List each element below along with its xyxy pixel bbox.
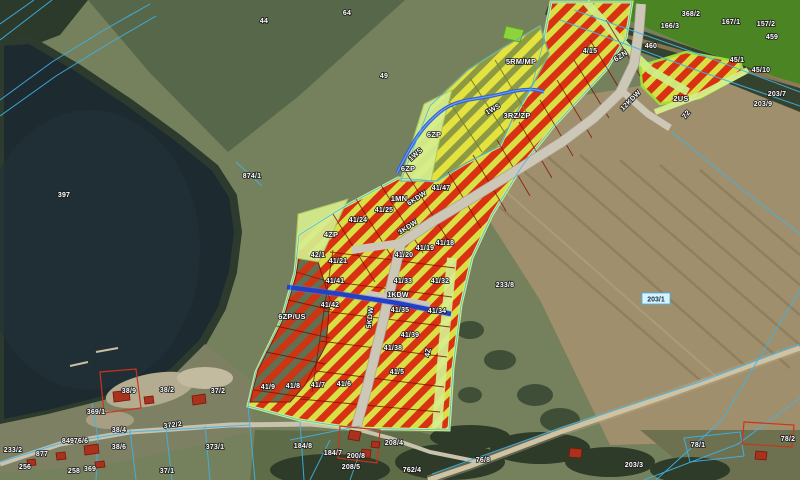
- parcel-label: 397: [58, 192, 70, 199]
- parcel-label: 849: [62, 438, 74, 445]
- selected-parcel-label-text: 203/1: [647, 297, 665, 304]
- parcel-label: 256: [19, 464, 31, 471]
- parcel-label: 41/20: [395, 252, 414, 259]
- parcel-label: 37/2: [211, 388, 225, 395]
- parcel-label: 184/8: [294, 443, 313, 450]
- parcel-label: 78/2: [781, 436, 795, 443]
- parcel-label: 41/19: [416, 245, 435, 252]
- parcel-label: 877: [36, 451, 48, 458]
- parcel-label: 41/42: [321, 302, 340, 309]
- parcel-label: 41/9: [261, 384, 275, 391]
- map-viewport: 5RM/MP3RZ/ZP6ZP6ZP6ZN2US4ZP6ZP/US1MN4Z72…: [0, 0, 800, 480]
- parcel-label: 874/1: [243, 173, 262, 180]
- parcel-label: 41/38: [384, 345, 403, 352]
- parcel-label: 184/7: [324, 450, 343, 457]
- parcel-label: 41/18: [436, 240, 455, 247]
- parcel-label: 76/6: [74, 438, 88, 445]
- parcel-label: 166/3: [661, 23, 680, 30]
- parcel-label: 167/1: [722, 19, 741, 26]
- parcel-label: 373/1: [206, 444, 225, 451]
- parcel-label: 258: [68, 468, 80, 475]
- map-canvas[interactable]: 5RM/MP3RZ/ZP6ZP6ZP6ZN2US4ZP6ZP/US1MN4Z72…: [0, 0, 800, 480]
- parcel-label: 49: [380, 73, 388, 80]
- parcel-label: 41/7: [311, 382, 325, 389]
- zone-label: 4ZP: [324, 230, 338, 239]
- zone-label: 2US: [673, 94, 688, 103]
- parcel-label: 369/1: [87, 409, 106, 416]
- parcel-label: 41/41: [326, 278, 345, 285]
- zone-label: 3RZ/ZP: [503, 111, 530, 120]
- parcel-label: 41/8: [286, 383, 300, 390]
- parcel-label: 78/1: [691, 442, 705, 449]
- parcel-label: 762/4: [403, 467, 422, 474]
- parcel-label: 200/8: [347, 453, 366, 460]
- parcel-label: 76/8: [476, 457, 490, 464]
- parcel-label: 41/21: [329, 258, 348, 265]
- parcel-label: 41/25: [375, 207, 394, 214]
- parcel-label: 460: [645, 43, 657, 50]
- parcel-label: 42/1: [311, 252, 325, 259]
- parcel-label: 208/4: [385, 440, 404, 447]
- zone-label: 4Z: [422, 347, 432, 358]
- zone-label: 1MN: [391, 194, 407, 203]
- road-label: 1KDW: [387, 292, 409, 299]
- zone-label: 6ZP: [427, 130, 441, 139]
- parcel-label: 38/6: [112, 444, 126, 451]
- parcel-label: 38/4: [112, 427, 126, 434]
- parcel-label: 41/35: [391, 307, 410, 314]
- parcel-label: 233/8: [496, 282, 515, 289]
- parcel-label: 41/47: [432, 185, 451, 192]
- zone-label: 5RM/MP: [506, 57, 536, 66]
- parcel-label: 157/2: [757, 21, 776, 28]
- parcel-label: 203/7: [768, 91, 787, 98]
- parcel-label: 4/15: [583, 48, 597, 55]
- parcel-label: 37/1: [160, 468, 174, 475]
- parcel-label: 41/32: [431, 278, 450, 285]
- parcel-label: 203/9: [754, 101, 773, 108]
- parcel-label: 41/24: [349, 217, 368, 224]
- parcel-label: 369: [84, 466, 96, 473]
- parcel-label: 45/1: [730, 57, 744, 64]
- parcel-label: 64: [343, 10, 351, 17]
- parcel-label: 41/33: [394, 278, 413, 285]
- parcel-label: 45/10: [752, 67, 771, 74]
- parcel-label: 459: [766, 34, 778, 41]
- zone-label: 6ZP: [401, 164, 415, 173]
- zone-label: 6ZP/US: [278, 312, 305, 321]
- parcel-label: 208/5: [342, 464, 361, 471]
- parcel-label: 41/5: [390, 369, 404, 376]
- parcel-label: 38/2: [160, 387, 174, 394]
- parcel-label: 368/2: [682, 11, 701, 18]
- parcel-label: 44: [260, 18, 268, 25]
- parcel-label: 38/9: [122, 388, 136, 395]
- parcel-label: 203/3: [625, 462, 644, 469]
- parcel-label: 233/2: [4, 447, 23, 454]
- parcel-label: 41/34: [428, 308, 447, 315]
- sand-patch: [177, 367, 233, 389]
- parcel-label: 41/6: [337, 381, 351, 388]
- selected-parcel-label[interactable]: 203/1: [642, 293, 670, 304]
- parcel-label: 41/39: [401, 332, 420, 339]
